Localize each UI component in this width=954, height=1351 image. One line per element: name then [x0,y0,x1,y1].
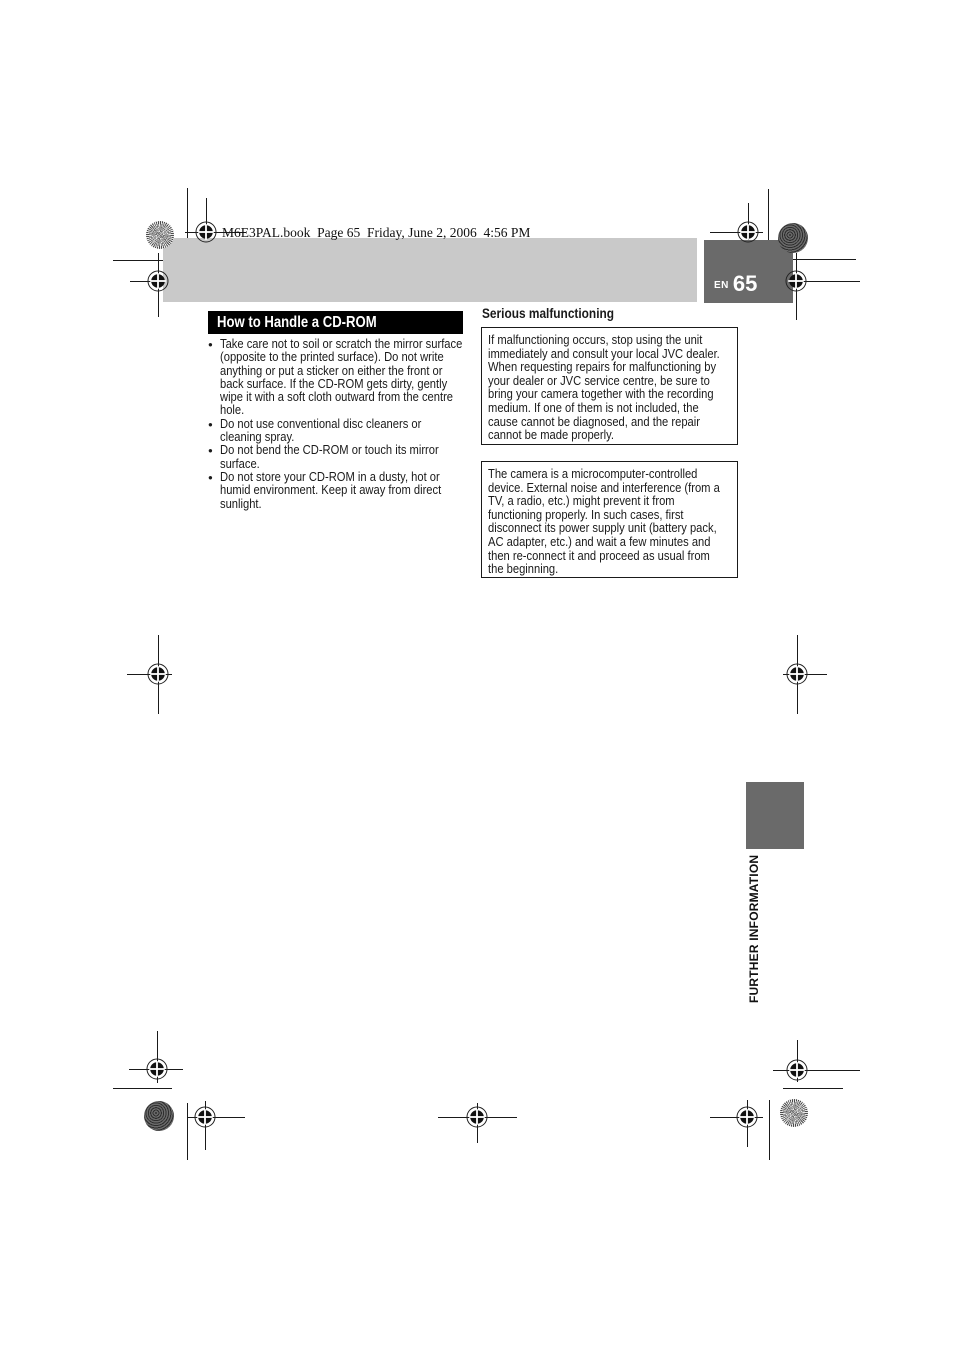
registration-mark-icon [785,662,809,686]
registration-mark-icon [785,1058,809,1082]
chapter-tab-box [746,782,804,849]
subsection-heading: Serious malfunctioning [482,306,614,321]
malfunction-note-text: If malfunctioning occurs, stop using the… [488,333,731,442]
microcomputer-note-text: The camera is a microcomputer-controlled… [488,467,731,576]
list-item-text: Do not bend the CD-ROM or touch its mirr… [220,443,439,470]
list-item: ● Do not use conventional disc cleaners … [208,417,460,444]
registration-mark-icon [145,1057,169,1081]
page-number-prefix: EN [714,280,729,291]
registration-mark-icon [194,220,218,244]
list-item-text: Take care not to soil or scratch the mir… [220,337,459,417]
bullet-icon: ● [208,417,220,431]
crop-line [187,1103,188,1160]
registration-mark-icon [146,269,170,293]
list-item: ● Do not bend the CD-ROM or touch its mi… [208,443,460,470]
microcomputer-note-box: The camera is a microcomputer-controlled… [481,461,738,578]
registration-mark-icon [784,269,808,293]
manual-page: EN 65 M6E3PAL.book Page 65 Friday, June … [0,0,954,1351]
section-title: How to Handle a CD-ROM [208,314,417,332]
list-item-text: Do not use conventional disc cleaners or… [220,417,426,444]
halftone-dot-icon [144,1101,174,1131]
page-number: 65 [733,274,757,294]
crop-line [783,1088,843,1089]
list-item: ● Do not store your CD-ROM in a dusty, h… [208,470,460,510]
pinwheel-mark-icon [780,1099,808,1127]
cdrom-care-list: ● Take care not to soil or scratch the m… [208,337,460,510]
registration-mark-icon [146,662,170,686]
pinwheel-mark-icon [146,221,174,249]
list-item-text: Do not store your CD-ROM in a dusty, hot… [220,470,441,510]
crop-line [113,1088,172,1089]
crop-line [783,259,856,260]
chapter-label-vertical: FURTHER INFORMATION [747,857,761,1003]
section-title-bar: How to Handle a CD-ROM [208,311,463,334]
registration-mark-icon [465,1105,489,1129]
list-item: ● Take care not to soil or scratch the m… [208,337,460,417]
bullet-icon: ● [208,443,220,457]
bullet-icon: ● [208,337,220,351]
halftone-dot-icon [778,223,808,253]
page-number-badge: EN 65 [704,240,793,303]
crop-line [769,1100,770,1160]
registration-mark-icon [736,220,760,244]
bullet-icon: ● [208,470,220,484]
registration-mark-icon [193,1105,217,1129]
document-header-line: M6E3PAL.book Page 65 Friday, June 2, 200… [222,225,530,241]
crop-line [768,189,769,247]
header-gray-band [163,238,697,302]
registration-mark-icon [735,1105,759,1129]
malfunction-note-box: If malfunctioning occurs, stop using the… [481,327,738,445]
